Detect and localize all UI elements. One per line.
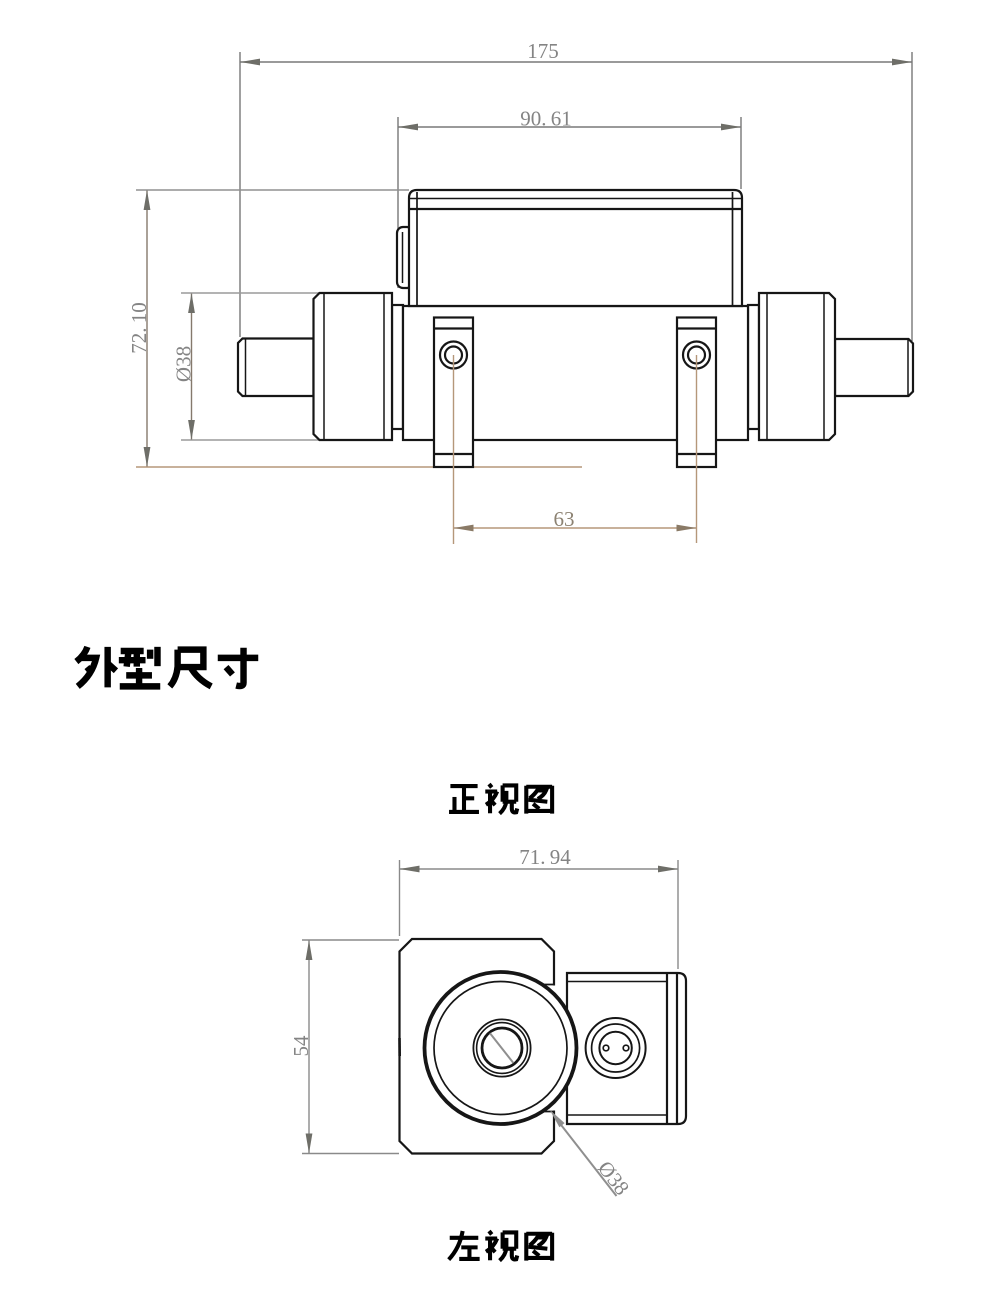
svg-text:71. 94: 71. 94 xyxy=(519,845,571,869)
svg-text:72. 10: 72. 10 xyxy=(127,302,151,353)
svg-text:Ø38: Ø38 xyxy=(172,346,196,382)
svg-text:54: 54 xyxy=(289,1035,313,1057)
svg-text:90. 61: 90. 61 xyxy=(520,107,571,131)
svg-text:175: 175 xyxy=(527,39,559,63)
svg-text:63: 63 xyxy=(554,507,575,531)
svg-text:Ø38: Ø38 xyxy=(593,1156,634,1199)
